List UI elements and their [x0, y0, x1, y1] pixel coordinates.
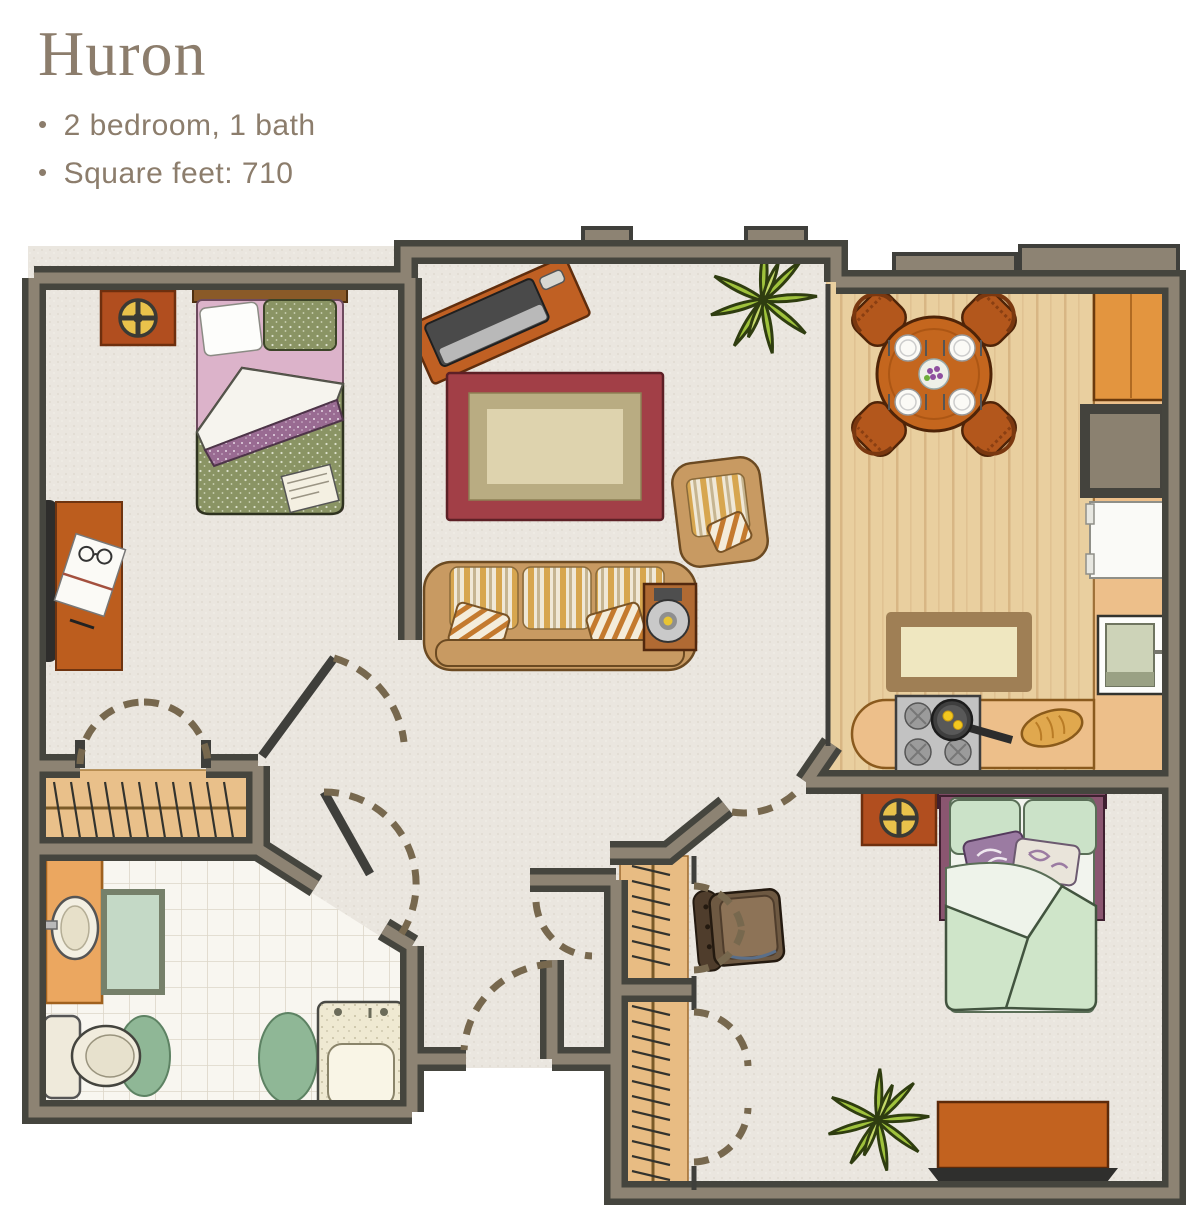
refrigerator [1086, 502, 1168, 578]
plan-header: Huron • 2 bedroom, 1 bath • Square feet:… [38, 20, 316, 191]
side-table-record-player [644, 584, 696, 650]
plan-title: Huron [38, 20, 316, 87]
bed-bedroom1 [193, 288, 347, 514]
detail-square-feet: • Square feet: 710 [38, 157, 316, 191]
bath-mat [104, 892, 162, 992]
detail-bed-bath: • 2 bedroom, 1 bath [38, 109, 316, 143]
bullet-icon: • [38, 157, 48, 188]
bottom-counter [852, 696, 1094, 772]
dresser [928, 1102, 1118, 1186]
desk-bedroom1 [38, 500, 126, 670]
bed-bedroom2 [938, 788, 1106, 1012]
leather-armchair [693, 884, 786, 971]
armchair [670, 455, 770, 569]
pantry-niche [1080, 404, 1170, 498]
plan-details: • 2 bedroom, 1 bath • Square feet: 710 [38, 109, 316, 191]
detail-bed-bath-text: 2 bedroom, 1 bath [64, 109, 316, 143]
closet-upper [620, 856, 688, 982]
floor-plan-page: Huron • 2 bedroom, 1 bath • Square feet:… [0, 0, 1200, 1221]
nightstand-clock-bedroom2 [862, 791, 936, 845]
kitchen-rug-center [901, 627, 1017, 677]
closet-lower [620, 996, 688, 1190]
vanity-sink [44, 855, 102, 1003]
detail-square-feet-text: Square feet: 710 [64, 157, 294, 191]
area-rug [447, 373, 663, 520]
bullet-icon: • [38, 109, 48, 140]
nightstand-clock-bedroom1 [101, 291, 175, 345]
tub-rug [259, 1013, 317, 1103]
walk-in-tub [318, 1002, 404, 1114]
